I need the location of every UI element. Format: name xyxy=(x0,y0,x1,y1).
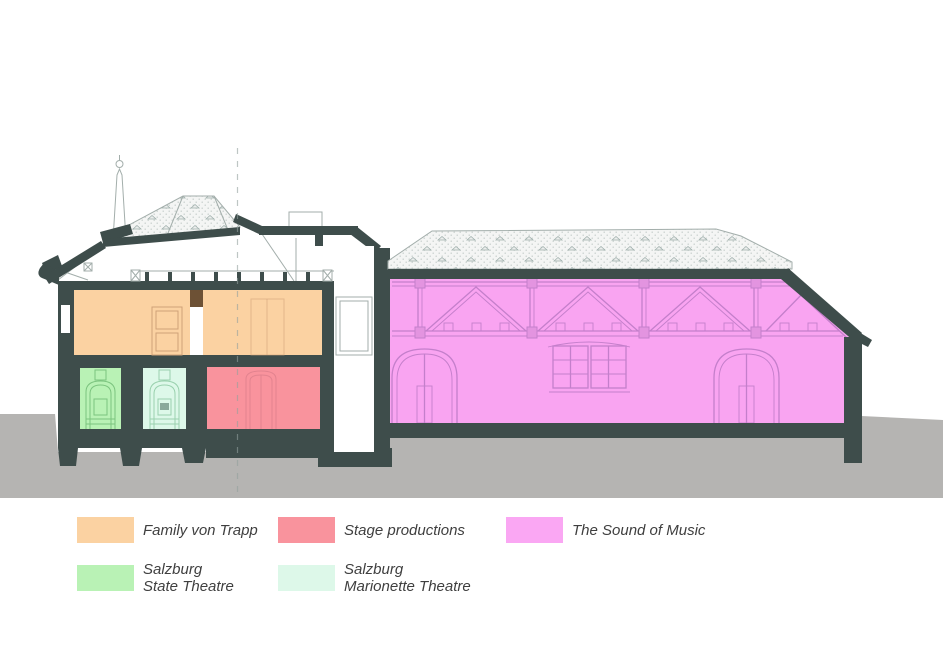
architectural-section-page: Family von Trapp Stage productions The S… xyxy=(0,0,943,665)
zone-marionette-theatre xyxy=(143,368,186,429)
legend-label-line: Salzburg xyxy=(344,561,403,578)
legend-item-stage-productions: Stage productions xyxy=(278,517,465,543)
legend-label-stage-productions: Stage productions xyxy=(344,522,465,539)
zone-stage-productions-room xyxy=(207,367,320,429)
zone-state-theatre xyxy=(80,368,121,429)
legend-label-line: Salzburg xyxy=(143,561,202,578)
zone-family-von-trapp-right xyxy=(203,290,322,355)
stage-tower xyxy=(334,246,374,452)
hall-roof xyxy=(388,229,792,269)
zone-family-von-trapp-left xyxy=(74,290,190,355)
legend-label-marionette-theatre: Salzburg Marionette Theatre xyxy=(344,561,471,595)
legend-item-marionette-theatre: Salzburg Marionette Theatre xyxy=(278,561,471,595)
legend-label-line: Marionette Theatre xyxy=(344,578,471,595)
legend-swatch-stage-productions xyxy=(278,517,335,543)
legend-label-sound-of-music: The Sound of Music xyxy=(572,522,705,539)
legend-item-family-von-trapp: Family von Trapp xyxy=(77,517,258,543)
festival-hall xyxy=(383,229,872,463)
legend-swatch-sound-of-music xyxy=(506,517,563,543)
left-building xyxy=(38,155,392,467)
wood-lintel xyxy=(190,290,203,307)
legend-item-state-theatre: Salzburg State Theatre xyxy=(77,561,234,595)
legend-swatch-family-von-trapp xyxy=(77,517,134,543)
legend-label-family-von-trapp: Family von Trapp xyxy=(143,522,258,539)
chimney xyxy=(289,212,322,227)
zone-sound-of-music xyxy=(390,279,851,423)
zone-stage-productions xyxy=(207,367,320,429)
legend-swatch-marionette-theatre xyxy=(278,565,335,591)
door-stage xyxy=(246,371,276,429)
legend-label-state-theatre: Salzburg State Theatre xyxy=(143,561,234,595)
legend-item-sound-of-music: The Sound of Music xyxy=(506,517,705,543)
legend-swatch-state-theatre xyxy=(77,565,134,591)
legend-label-line: State Theatre xyxy=(143,578,234,595)
